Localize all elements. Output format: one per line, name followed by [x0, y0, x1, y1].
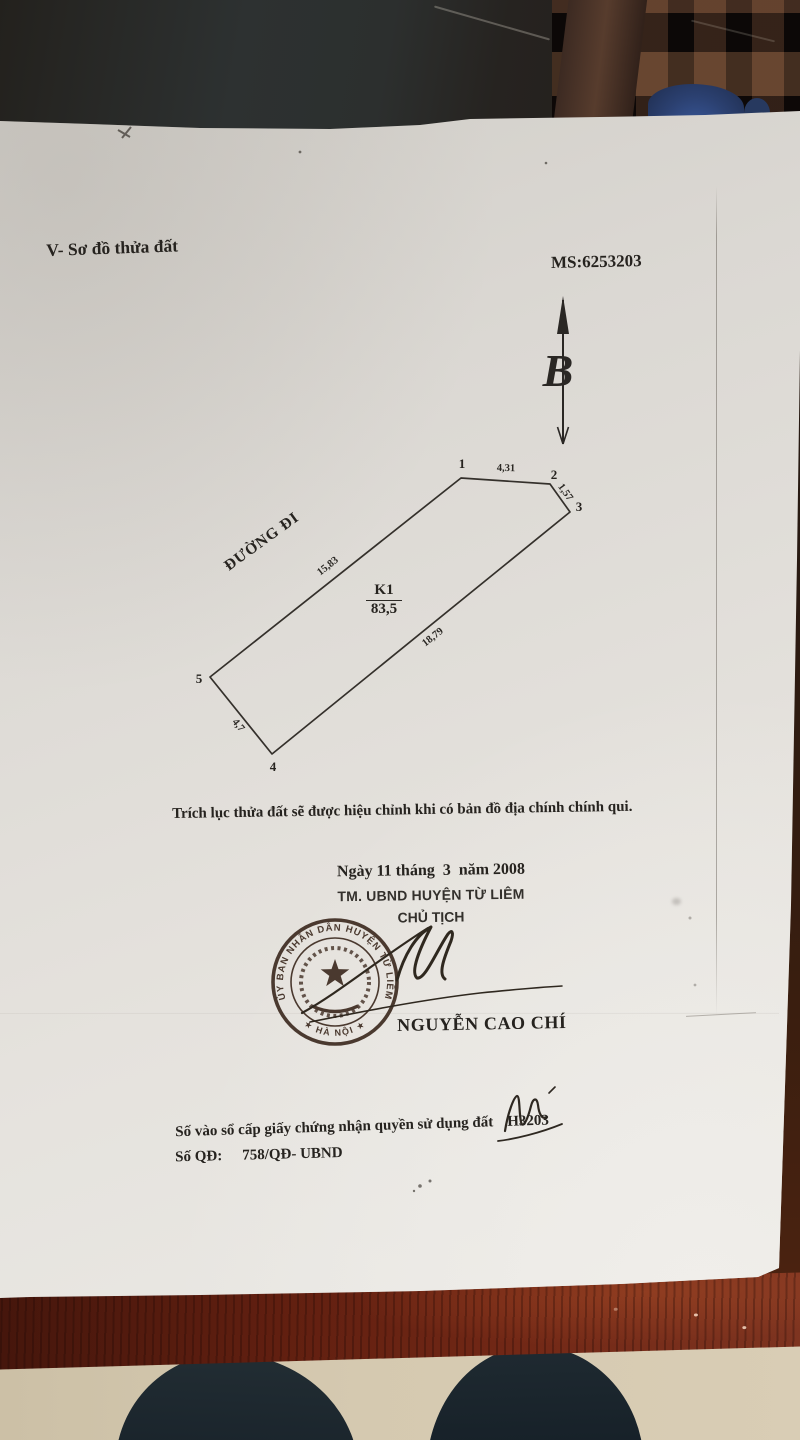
parcel-code: K1 [358, 582, 410, 601]
stamp-star-icon [321, 959, 350, 986]
scratch-mark [434, 6, 550, 41]
north-arrow-icon: B [542, 296, 574, 444]
photo-scene: B ỦY BAN NHÂN DÂN HUYỆN TỪ LIÊM ★ HÀ NỘI… [0, 0, 800, 1440]
wood-highlight [742, 1326, 746, 1329]
parcel-code-text: K1 [366, 582, 401, 601]
parcel-area: 83,5 [358, 601, 410, 618]
wood-highlight [694, 1313, 698, 1316]
official-stamp: ỦY BAN NHÂN DÂN HUYỆN TỪ LIÊM ★ HÀ NỘI ★ [273, 920, 397, 1044]
document-paper: B ỦY BAN NHÂN DÂN HUYỆN TỪ LIÊM ★ HÀ NỘI… [0, 0, 800, 1440]
stamp-wreath [301, 948, 369, 1016]
wood-highlight [614, 1308, 618, 1311]
vertex-label-4: 4 [266, 759, 280, 775]
paper-smudge [672, 898, 681, 905]
ms-code: MS:6253203 [551, 251, 642, 273]
registry-number: H3203 [507, 1113, 549, 1130]
vertex-label-1: 1 [455, 456, 469, 472]
signer-name: NGUYỄN CAO CHÍ [397, 1012, 567, 1036]
stamp-banner [312, 1006, 358, 1012]
decision-number: 758/QĐ- UBND [242, 1145, 343, 1164]
decision-label: Số QĐ: [175, 1148, 222, 1165]
decision-line: Số QĐ:758/QĐ- UBND [152, 1128, 343, 1184]
edge-length-1-2: 4,31 [487, 463, 525, 475]
diagram-svg: B ỦY BAN NHÂN DÂN HUYỆN TỪ LIÊM ★ HÀ NỘI… [0, 0, 800, 1440]
vertex-label-5: 5 [192, 671, 206, 687]
north-label: B [542, 345, 574, 396]
